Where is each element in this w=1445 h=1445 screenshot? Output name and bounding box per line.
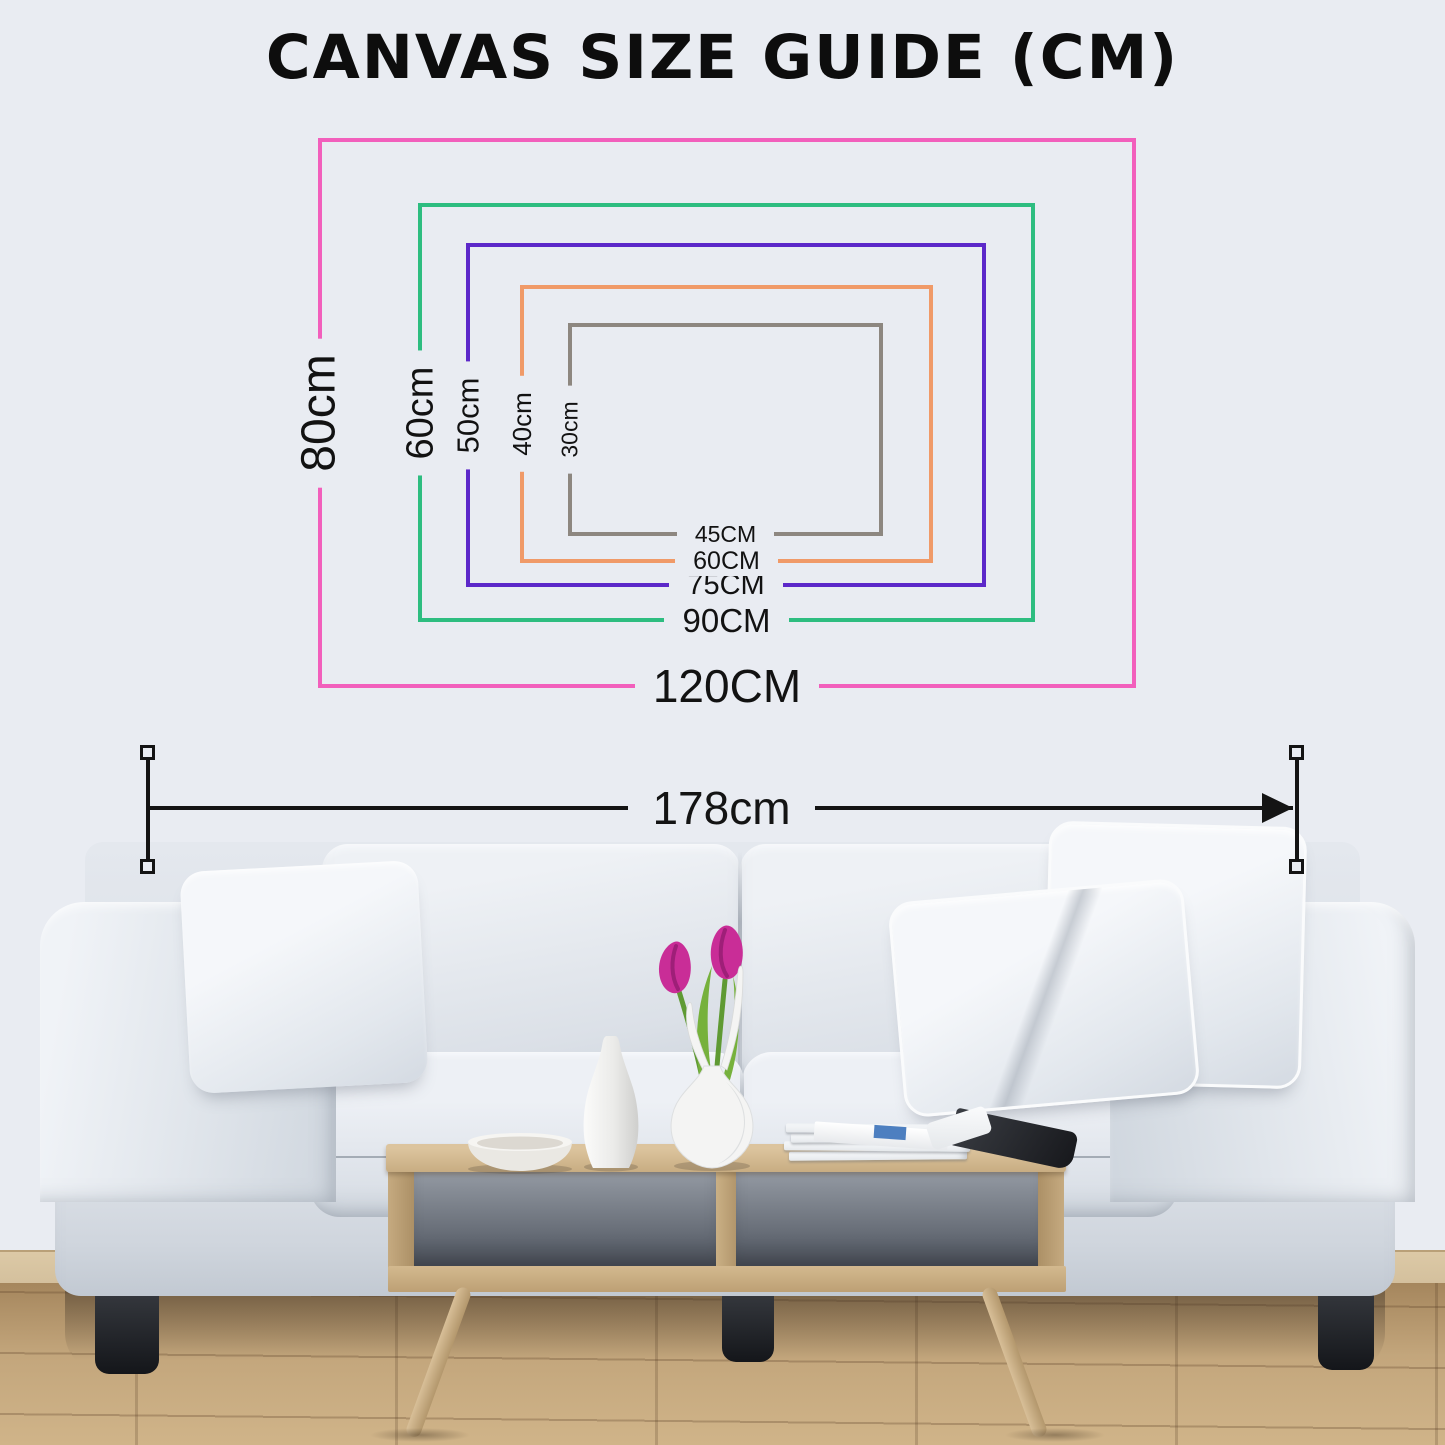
measure-handle (1289, 859, 1304, 874)
measure-end-bar-left (146, 752, 150, 866)
arrow-right-icon (1262, 793, 1293, 823)
canvas-size-guide-poster: CANVAS SIZE GUIDE (CM) 120CM 80cm 90CM 6… (0, 0, 1445, 1445)
measure-handle (1289, 745, 1304, 760)
width-measurement: 178cm (0, 0, 1445, 1445)
measure-label: 178cm (628, 781, 814, 835)
measure-end-bar-right (1295, 752, 1299, 866)
measure-handle (140, 745, 155, 760)
measure-handle (140, 859, 155, 874)
